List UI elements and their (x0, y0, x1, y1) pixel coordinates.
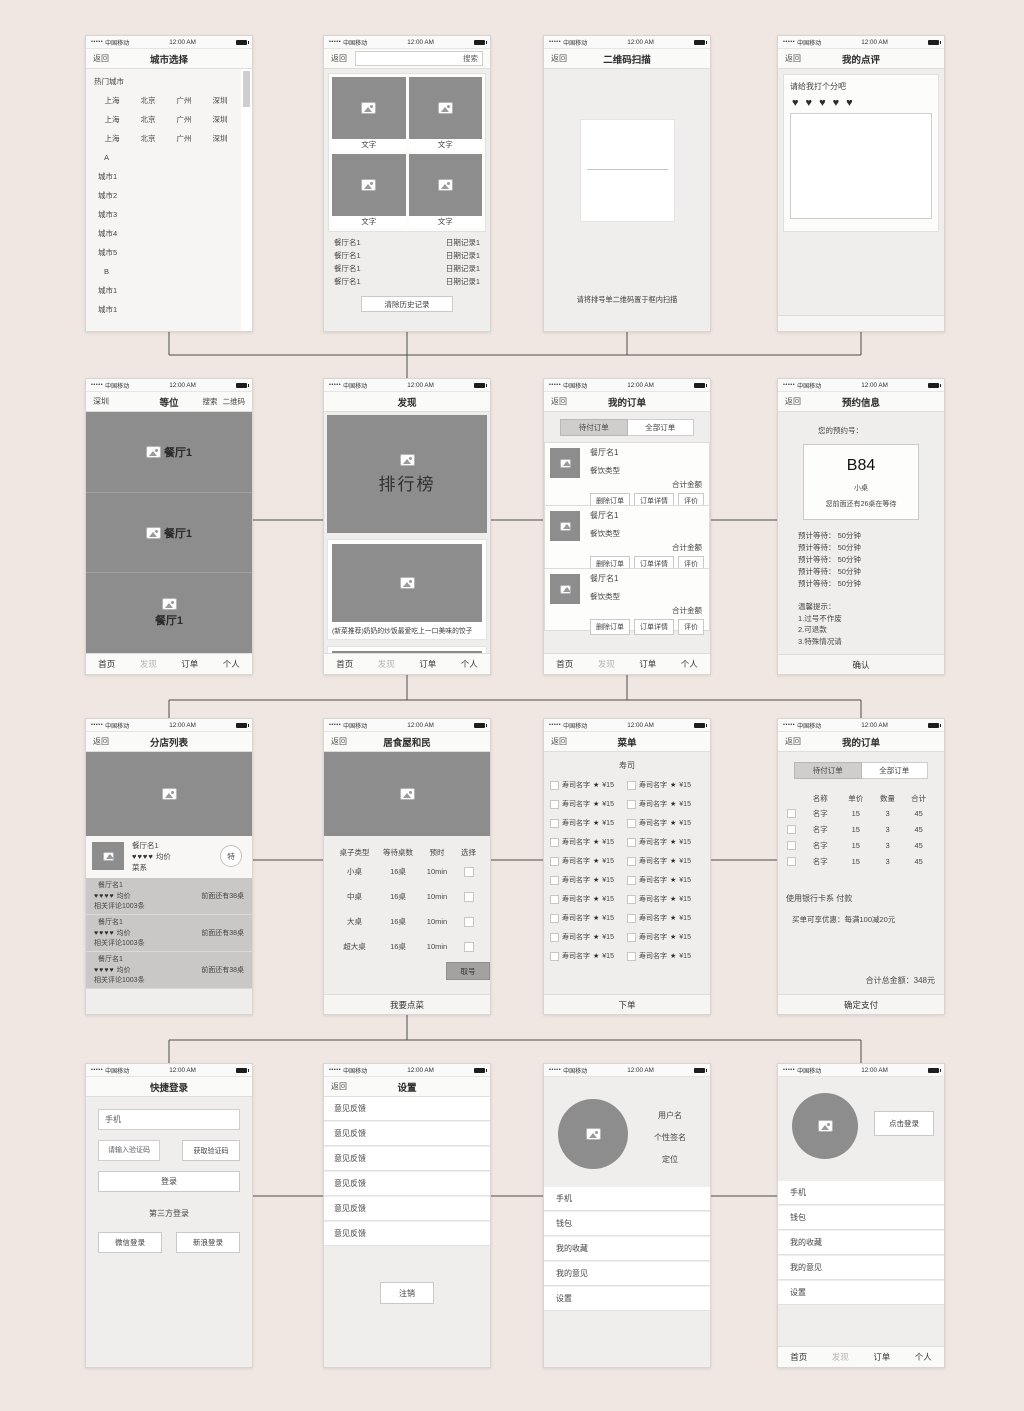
item-checkbox[interactable] (787, 841, 796, 850)
order-detail-button[interactable]: 订单详情 (634, 619, 674, 635)
tab-profile[interactable]: 个人 (915, 1351, 932, 1363)
menu-item-checkbox[interactable] (550, 952, 559, 961)
menu-item[interactable]: 寿司名字 ★ ¥15 (627, 855, 704, 867)
heart-rating-icons: ♥♥♥♥ (94, 967, 115, 974)
menu-item[interactable]: 寿司名字 ★ ¥15 (627, 836, 704, 848)
tab-pending-orders[interactable]: 待付订单 (560, 419, 628, 436)
get-code-button[interactable]: 获取验证码 (182, 1140, 240, 1161)
branch-row[interactable]: 餐厅名1 ♥♥♥♥ 均价 相关评论1003条 前面还有38桌 (86, 878, 252, 915)
back-button[interactable]: 返回 (785, 53, 801, 64)
item-checkbox[interactable] (787, 809, 796, 818)
item-subtotal: 45 (903, 825, 934, 834)
search-history-list: 餐厅名1 日期记录1 餐厅名1 日期记录1 餐厅名1 日期记录1 餐厅名1 日期… (324, 236, 490, 288)
page-title: 居食屋和民 (324, 735, 490, 749)
item-quantity: 3 (872, 857, 903, 866)
city-list-item[interactable]: 城市4 (94, 224, 238, 243)
hot-city[interactable]: 广州 (166, 110, 202, 129)
city-list-item[interactable]: 城市1 (94, 281, 238, 300)
waiting-count: 16桌 (377, 866, 419, 877)
city-list-item[interactable]: 城市5 (94, 243, 238, 262)
star-icon: ★ (670, 819, 676, 827)
menu-item-price: ¥15 (679, 877, 691, 884)
logout-button[interactable]: 注销 (380, 1282, 434, 1304)
scrollbar-thumb[interactable] (243, 71, 250, 107)
screen-restaurant-detail: ••••• 中国移动 12:00 AM 返回 居食屋和民 桌子类型 等待桌数 预… (323, 718, 491, 1015)
profile-list-item[interactable]: 我的收藏 (544, 1237, 710, 1261)
select-checkbox[interactable] (464, 867, 474, 877)
profile-list-item[interactable]: 我的意见 (778, 1256, 944, 1280)
weibo-login-button[interactable]: 新浪登录 (176, 1232, 240, 1253)
order-card[interactable]: 餐厅名1 餐饮类型 合计金额 删除订单 订单详情 评价 (544, 568, 710, 631)
suggestion-image (332, 77, 406, 139)
article-card[interactable] (327, 646, 487, 653)
menu-item[interactable]: 寿司名字 ★ ¥15 (550, 855, 627, 867)
menu-item-checkbox[interactable] (627, 914, 636, 923)
menu-item[interactable]: 寿司名字 ★ ¥15 (550, 836, 627, 848)
scrollbar-track[interactable] (241, 69, 252, 331)
qr-link[interactable]: 二维码 (223, 396, 246, 407)
phone-input[interactable] (99, 1110, 239, 1129)
star-icon: ★ (670, 781, 676, 789)
signal-icon: ••••• (783, 382, 795, 388)
signal-icon: ••••• (549, 382, 561, 388)
history-row[interactable]: 餐厅名1 日期记录1 (324, 262, 490, 275)
take-number-button[interactable]: 取号 (446, 962, 490, 980)
banner-restaurant-name: 餐厅1 (155, 612, 183, 628)
status-bar: ••••• 中国移动 12:00 AM (324, 379, 490, 392)
history-date: 日期记录1 (446, 236, 480, 249)
star-icon: ★ (670, 933, 676, 941)
ranking-banner[interactable]: 排行榜 (327, 415, 487, 533)
back-button[interactable]: 返回 (331, 1081, 347, 1092)
menu-item-price: ¥15 (679, 915, 691, 922)
city-list-panel: 热门城市 上海 北京 广州 深圳 上海 北京 广州 深圳 上海 北京 广州 深圳… (86, 69, 252, 331)
verification-code-input[interactable] (99, 1141, 159, 1160)
tips-title: 温馨提示： (798, 601, 944, 613)
image-placeholder-icon (438, 102, 453, 114)
restaurant-banner[interactable]: 餐厅1 (86, 412, 252, 493)
menu-item-checkbox[interactable] (627, 933, 636, 942)
status-bar: ••••• 中国移动 12:00 AM (86, 379, 252, 392)
restaurant-banner[interactable]: 餐厅1 (86, 493, 252, 574)
menu-item[interactable]: 寿司名字 ★ ¥15 (550, 893, 627, 905)
item-name: 名字 (801, 856, 839, 867)
menu-item-name: 寿司名字 (562, 837, 590, 847)
order-item-row: 名字 15 3 45 (778, 805, 944, 821)
signal-icon: ••••• (91, 722, 103, 728)
page-title: 预约信息 (778, 395, 944, 409)
select-checkbox[interactable] (464, 917, 474, 927)
table-type-row: 超大桌 16桌 10min (324, 934, 490, 959)
nav-bar: 返回 设置 (324, 1077, 490, 1097)
article-caption: (新菜推荐)奶奶的炒饭最爱吃上一口美味的饺子 (332, 625, 482, 635)
nav-bar: 返回 我的订单 (544, 392, 710, 412)
menu-item-checkbox[interactable] (627, 895, 636, 904)
status-time: 12:00 AM (367, 722, 474, 729)
profile-list-item[interactable]: 设置 (778, 1281, 944, 1305)
profile-list-item[interactable]: 我的收藏 (778, 1231, 944, 1255)
tab-discover[interactable]: 发现 (598, 658, 615, 670)
status-time: 12:00 AM (587, 39, 694, 46)
image-placeholder-icon (162, 788, 177, 800)
status-time: 12:00 AM (129, 722, 236, 729)
order-total-label: 合计金额 (550, 542, 704, 553)
item-checkbox[interactable] (787, 857, 796, 866)
image-placeholder-icon (586, 1128, 601, 1140)
tab-discover[interactable]: 发现 (378, 658, 395, 670)
hot-city[interactable]: 上海 (94, 91, 130, 110)
index-letter: B (94, 262, 238, 281)
back-button[interactable]: 返回 (551, 53, 567, 64)
tab-profile[interactable]: 个人 (681, 658, 698, 670)
order-card[interactable]: 餐厅名1 餐饮类型 合计金额 删除订单 订单详情 评价 (544, 505, 710, 568)
tab-bar: 首页 发现 订单 个人 (324, 653, 490, 674)
menu-item-price: ¥15 (679, 953, 691, 960)
menu-item-checkbox[interactable] (627, 952, 636, 961)
history-row[interactable]: 餐厅名1 日期记录1 (324, 236, 490, 249)
item-quantity: 3 (872, 809, 903, 818)
signal-icon: ••••• (549, 39, 561, 45)
table-header-row: 桌子类型 等待桌数 预时 选择 (324, 845, 490, 859)
order-item-row: 名字 15 3 45 (778, 853, 944, 869)
branch-thumbnail (92, 842, 124, 870)
history-row[interactable]: 餐厅名1 日期记录1 (324, 249, 490, 262)
back-button[interactable]: 返回 (331, 736, 347, 747)
city-selector-link[interactable]: 深圳 (93, 396, 109, 407)
battery-icon (694, 40, 705, 45)
tab-orders[interactable]: 订单 (181, 658, 198, 670)
hot-city-row: 上海 北京 广州 深圳 (94, 91, 238, 110)
heart-rating-icons[interactable]: ♥♥♥♥♥ (792, 97, 932, 109)
third-party-label: 第三方登录 (86, 1208, 252, 1219)
menu-item-checkbox[interactable] (627, 857, 636, 866)
settings-list-item[interactable]: 意见反馈 (324, 1097, 490, 1121)
city-list-item[interactable]: 城市3 (94, 205, 238, 224)
rate-order-button[interactable]: 评价 (678, 619, 704, 635)
order-cuisine-type: 餐饮类型 (590, 465, 704, 476)
status-bar: ••••• 中国移动 12:00 AM (778, 36, 944, 49)
nav-bar: 返回 二维码扫描 (544, 49, 710, 69)
menu-item-checkbox[interactable] (627, 876, 636, 885)
menu-item-checkbox[interactable] (550, 857, 559, 866)
tab-profile[interactable]: 个人 (461, 658, 478, 670)
city-list-item[interactable]: 城市2 (94, 186, 238, 205)
star-icon: ★ (670, 876, 676, 884)
banner-restaurant-name: 餐厅1 (164, 525, 192, 541)
hot-city[interactable]: 深圳 (202, 129, 238, 148)
page-title: 菜单 (544, 735, 710, 749)
settings-list-item[interactable]: 意见反馈 (324, 1122, 490, 1146)
col-quantity: 数量 (872, 793, 903, 804)
menu-item-price: ¥15 (679, 839, 691, 846)
battery-icon (928, 723, 939, 728)
select-checkbox[interactable] (464, 892, 474, 902)
place-order-button[interactable]: 下单 (544, 994, 710, 1014)
image-placeholder-icon (162, 598, 177, 610)
screen-profile: ••••• 中国移动 12:00 AM 用户名 个性签名 定位 手机钱包我的收藏… (543, 1063, 711, 1368)
tab-home[interactable]: 首页 (336, 658, 353, 670)
col-table-type: 桌子类型 (332, 847, 377, 858)
screen-search: ••••• 中国移动 12:00 AM 返回 文字 文字 文字 文字 (323, 35, 491, 332)
suggestion-image (409, 77, 483, 139)
item-subtotal: 45 (903, 841, 934, 850)
hot-city[interactable]: 广州 (166, 129, 202, 148)
restaurant-banner[interactable]: 餐厅1 (86, 573, 252, 653)
star-icon: ★ (670, 838, 676, 846)
menu-section-title: 寿司 (544, 760, 710, 771)
order-item-row: 名字 15 3 45 (778, 837, 944, 853)
image-placeholder-icon (361, 179, 376, 191)
clear-history-button[interactable]: 清除历史记录 (361, 296, 453, 312)
tab-discover[interactable]: 发现 (140, 658, 157, 670)
item-unit-price: 15 (839, 809, 872, 818)
menu-item-checkbox[interactable] (627, 800, 636, 809)
image-placeholder-icon (400, 788, 415, 800)
menu-item-checkbox[interactable] (550, 838, 559, 847)
avatar[interactable] (558, 1099, 628, 1169)
tab-pending-orders[interactable]: 待付订单 (794, 762, 862, 779)
profile-list-item[interactable]: 手机 (544, 1187, 710, 1211)
waiting-count: 16桌 (377, 891, 419, 902)
menu-item-checkbox[interactable] (550, 933, 559, 942)
back-button[interactable]: 返回 (785, 736, 801, 747)
status-time: 12:00 AM (821, 1067, 928, 1074)
history-row[interactable]: 餐厅名1 日期记录1 (324, 275, 490, 288)
featured-branch-row[interactable]: 餐厅名1 ♥♥♥♥ 均价 菜系 特 (86, 836, 252, 878)
back-button[interactable]: 返回 (93, 53, 109, 64)
hot-city[interactable]: 广州 (166, 91, 202, 110)
order-item-row: 名字 15 3 45 (778, 821, 944, 837)
search-link[interactable]: 搜索 (203, 396, 218, 407)
profile-list-item[interactable]: 设置 (544, 1287, 710, 1311)
menu-item-name: 寿司名字 (639, 913, 667, 923)
tip-line: 3.特殊情况请 (798, 636, 944, 648)
item-unit-price: 15 (839, 841, 872, 850)
star-icon: ★ (593, 895, 599, 903)
tab-home[interactable]: 首页 (556, 658, 573, 670)
wait-estimate-line: 预计等待： 50分钟 (798, 578, 944, 590)
tab-orders[interactable]: 订单 (873, 1351, 890, 1363)
suggestion-cell[interactable]: 文字 (409, 77, 483, 151)
menu-item[interactable]: 寿司名字 ★ ¥15 (550, 798, 627, 810)
screen-order-checkout: ••••• 中国移动 12:00 AM 返回 我的订单 待付订单 全部订单 名称… (777, 718, 945, 1015)
profile-list-item[interactable]: 手机 (778, 1181, 944, 1205)
menu-item[interactable]: 寿司名字 ★ ¥15 (627, 912, 704, 924)
menu-item-checkbox[interactable] (550, 914, 559, 923)
scan-hint-text: 请将排号单二维码置于框内扫描 (544, 295, 710, 305)
carrier-label: 中国移动 (105, 721, 129, 730)
history-date: 日期记录1 (446, 262, 480, 275)
tab-home[interactable]: 首页 (790, 1351, 807, 1363)
hot-city[interactable]: 深圳 (202, 110, 238, 129)
suggestion-caption: 文字 (409, 139, 483, 151)
menu-item[interactable]: 寿司名字 ★ ¥15 (550, 931, 627, 943)
confirm-payment-button[interactable]: 确定支付 (778, 994, 944, 1014)
branch-name: 餐厅名1 (94, 955, 252, 966)
menu-item[interactable]: 寿司名字 ★ ¥15 (627, 798, 704, 810)
menu-item-name: 寿司名字 (562, 913, 590, 923)
tab-home[interactable]: 首页 (98, 658, 115, 670)
signal-icon: ••••• (783, 722, 795, 728)
item-unit-price: 15 (839, 857, 872, 866)
back-button[interactable]: 返回 (551, 396, 567, 407)
menu-item[interactable]: 寿司名字 ★ ¥15 (550, 779, 627, 791)
table-type-row: 小桌 16桌 10min (324, 859, 490, 884)
menu-item[interactable]: 寿司名字 ★ ¥15 (627, 893, 704, 905)
estimated-time: 10min (419, 867, 455, 876)
wait-estimate-line: 预计等待： 50分钟 (798, 566, 944, 578)
settings-list-item[interactable]: 意见反馈 (324, 1197, 490, 1221)
tab-all-orders[interactable]: 全部订单 (862, 762, 929, 779)
menu-item-price: ¥15 (602, 839, 614, 846)
image-placeholder-icon (560, 585, 571, 594)
status-time: 12:00 AM (367, 39, 474, 46)
nav-bar: 返回 预约信息 (778, 392, 944, 412)
history-restaurant-name: 餐厅名1 (334, 262, 361, 275)
avatar[interactable] (792, 1093, 858, 1159)
hot-city[interactable]: 北京 (130, 110, 166, 129)
image-placeholder-icon (560, 459, 571, 468)
carrier-label: 中国移动 (797, 381, 821, 390)
order-cuisine-type: 餐饮类型 (590, 591, 704, 602)
status-time: 12:00 AM (129, 39, 236, 46)
profile-list-item[interactable]: 钱包 (778, 1206, 944, 1230)
queue-number: B84 (804, 457, 918, 475)
menu-item-price: ¥15 (602, 782, 614, 789)
history-date: 日期记录1 (446, 275, 480, 288)
status-bar: ••••• 中国移动 12:00 AM (778, 719, 944, 732)
menu-item[interactable]: 寿司名字 ★ ¥15 (550, 950, 627, 962)
heart-rating-icons: ♥♥♥♥ (94, 893, 115, 900)
tab-all-orders[interactable]: 全部订单 (628, 419, 695, 436)
carrier-label: 中国移动 (105, 1066, 129, 1075)
battery-icon (236, 723, 247, 728)
menu-item[interactable]: 寿司名字 ★ ¥15 (627, 950, 704, 962)
article-card[interactable]: (新菜推荐)奶奶的炒饭最爱吃上一口美味的饺子 (327, 539, 487, 640)
wechat-login-button[interactable]: 微信登录 (98, 1232, 162, 1253)
screen-city-select: ••••• 中国移动 12:00 AM 返回 城市选择 热门城市 上海 北京 广… (85, 35, 253, 332)
back-button[interactable]: 返回 (93, 736, 109, 747)
menu-item-checkbox[interactable] (550, 800, 559, 809)
profile-list-item[interactable]: 钱包 (544, 1212, 710, 1236)
menu-item-price: ¥15 (679, 896, 691, 903)
image-placeholder-icon (438, 179, 453, 191)
select-checkbox[interactable] (464, 942, 474, 952)
page-title: 分店列表 (86, 735, 252, 749)
page-title: 快捷登录 (86, 1080, 252, 1094)
rating-card: 请给我打个分吧 ♥♥♥♥♥ (783, 74, 939, 232)
review-textarea[interactable] (790, 113, 932, 219)
menu-item-checkbox[interactable] (550, 876, 559, 885)
hot-city-row: 上海 北京 广州 深圳 (94, 110, 238, 129)
wait-estimate-line: 预计等待： 50分钟 (798, 554, 944, 566)
menu-item-name: 寿司名字 (639, 837, 667, 847)
back-button[interactable]: 返回 (551, 736, 567, 747)
screen-settings: ••••• 中国移动 12:00 AM 返回 设置 意见反馈意见反馈意见反馈意见… (323, 1063, 491, 1368)
signal-icon: ••••• (329, 39, 341, 45)
search-input[interactable] (355, 51, 483, 66)
branch-row[interactable]: 餐厅名1 ♥♥♥♥ 均价 相关评论1003条 前面还有38桌 (86, 915, 252, 952)
click-login-button[interactable]: 点击登录 (874, 1111, 934, 1136)
reservation-card: B84 小桌 您前面还有26桌在等待 (803, 444, 919, 520)
hot-city[interactable]: 上海 (94, 129, 130, 148)
login-button[interactable]: 登录 (98, 1171, 240, 1192)
suggestion-cell[interactable]: 文字 (332, 77, 406, 151)
hot-city[interactable]: 北京 (130, 91, 166, 110)
back-button[interactable]: 返回 (785, 396, 801, 407)
menu-item[interactable]: 寿司名字 ★ ¥15 (627, 817, 704, 829)
branch-row[interactable]: 餐厅名1 ♥♥♥♥ 均价 相关评论1003条 前面还有38桌 (86, 952, 252, 989)
menu-item-checkbox[interactable] (627, 838, 636, 847)
page-title: 我的点评 (778, 52, 944, 66)
tab-orders[interactable]: 订单 (639, 658, 656, 670)
battery-icon (928, 383, 939, 388)
menu-item-price: ¥15 (679, 782, 691, 789)
suggestion-cell[interactable]: 文字 (409, 154, 483, 228)
menu-item-checkbox[interactable] (550, 895, 559, 904)
settings-list-item[interactable]: 意见反馈 (324, 1147, 490, 1171)
menu-item[interactable]: 寿司名字 ★ ¥15 (627, 931, 704, 943)
tab-orders[interactable]: 订单 (419, 658, 436, 670)
screen-orders: ••••• 中国移动 12:00 AM 返回 我的订单 待付订单 全部订单 餐厅… (543, 378, 711, 675)
back-button[interactable]: 返回 (331, 53, 347, 64)
menu-item-name: 寿司名字 (562, 875, 590, 885)
order-card[interactable]: 餐厅名1 餐饮类型 合计金额 删除订单 订单详情 评价 (544, 442, 710, 505)
hot-city[interactable]: 北京 (130, 129, 166, 148)
star-icon: ★ (593, 876, 599, 884)
suggestion-cell[interactable]: 文字 (332, 154, 406, 228)
menu-item-checkbox[interactable] (627, 781, 636, 790)
menu-item-checkbox[interactable] (550, 819, 559, 828)
status-bar: ••••• 中国移动 12:00 AM (86, 36, 252, 49)
menu-item-name: 寿司名字 (562, 932, 590, 942)
confirm-button[interactable]: 确认 (778, 654, 944, 674)
status-time: 12:00 AM (821, 382, 928, 389)
menu-item-name: 寿司名字 (562, 799, 590, 809)
menu-item[interactable]: 寿司名字 ★ ¥15 (550, 817, 627, 829)
hot-city[interactable]: 上海 (94, 110, 130, 129)
hot-city[interactable]: 深圳 (202, 91, 238, 110)
menu-item-price: ¥15 (602, 915, 614, 922)
menu-item-checkbox[interactable] (627, 819, 636, 828)
menu-item-checkbox[interactable] (550, 781, 559, 790)
settings-list-item[interactable]: 意见反馈 (324, 1172, 490, 1196)
tab-profile[interactable]: 个人 (223, 658, 240, 670)
col-estimated-time: 预时 (419, 847, 455, 858)
branch-hero-image (86, 752, 252, 836)
payment-method-text[interactable]: 使用银行卡系 付款 (786, 893, 944, 904)
username-label: 用户名 (640, 1105, 700, 1127)
heart-rating-icons: ♥♥♥♥ (94, 930, 115, 937)
menu-item[interactable]: 寿司名字 ★ ¥15 (550, 874, 627, 886)
city-list-item[interactable]: 城市1 (94, 167, 238, 186)
menu-item[interactable]: 寿司名字 ★ ¥15 (550, 912, 627, 924)
menu-item[interactable]: 寿司名字 ★ ¥15 (627, 874, 704, 886)
city-list-item[interactable]: 城市1 (94, 300, 238, 319)
settings-list-item[interactable]: 意见反馈 (324, 1222, 490, 1246)
delete-order-button[interactable]: 删除订单 (590, 619, 630, 635)
star-icon: ★ (670, 914, 676, 922)
status-bar: ••••• 中国移动 12:00 AM (86, 1064, 252, 1077)
tab-discover[interactable]: 发现 (832, 1351, 849, 1363)
battery-icon (694, 383, 705, 388)
order-food-button[interactable]: 我要点菜 (324, 994, 490, 1014)
nav-bar: 返回 菜单 (544, 732, 710, 752)
menu-item[interactable]: 寿司名字 ★ ¥15 (627, 779, 704, 791)
nav-bar: 返回 分店列表 (86, 732, 252, 752)
profile-list-item[interactable]: 我的意见 (544, 1262, 710, 1286)
item-checkbox[interactable] (787, 825, 796, 834)
